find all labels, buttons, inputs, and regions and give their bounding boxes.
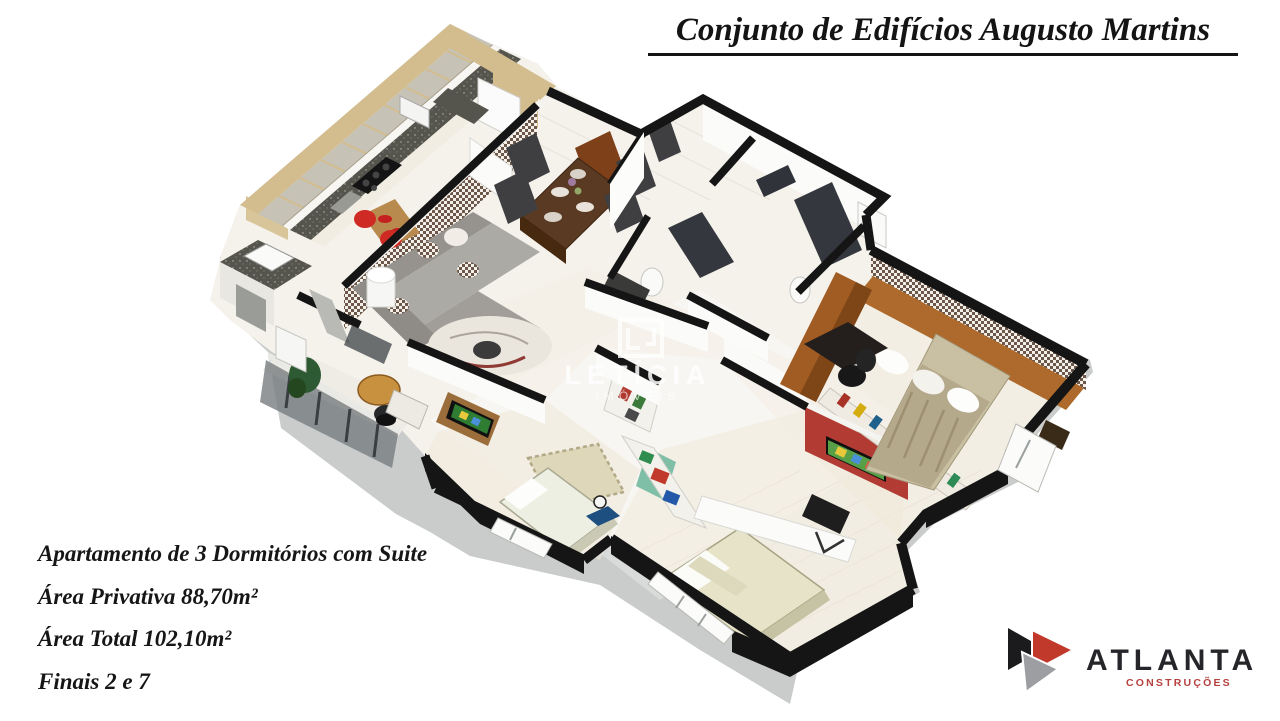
svg-text:LETÍCIA: LETÍCIA — [565, 359, 712, 390]
svg-text:IMÓVEIS: IMÓVEIS — [595, 388, 680, 403]
